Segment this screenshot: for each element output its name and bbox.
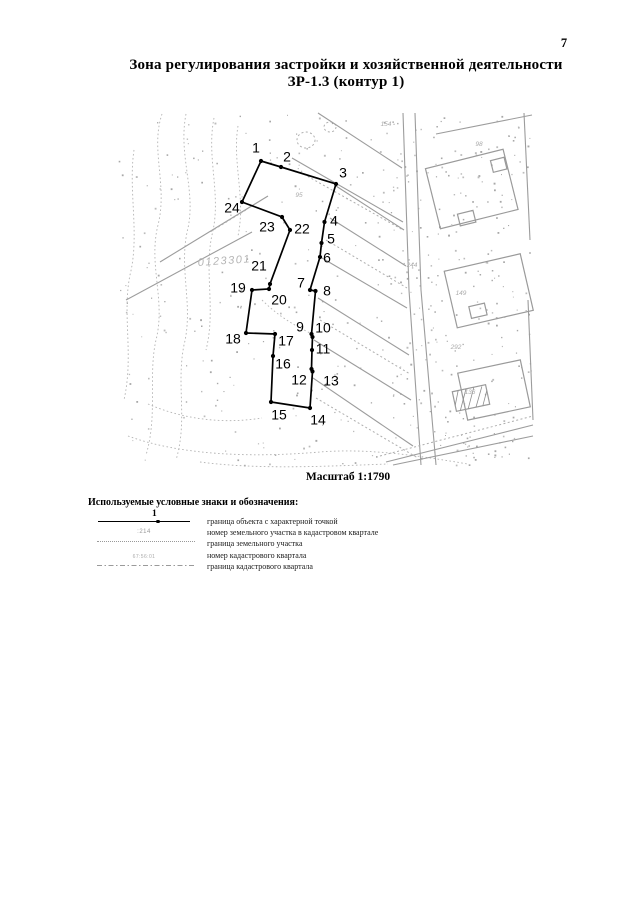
boundary-point-dot	[267, 287, 271, 291]
boundary-point-dot	[279, 165, 283, 169]
map-figure: 0123301 1549895244149292136 123456789101…	[0, 0, 640, 905]
boundary-point-dot	[244, 331, 248, 335]
boundary-point-dot	[310, 348, 314, 352]
boundary-point-label: 13	[323, 373, 339, 389]
boundary-point-label: 17	[278, 333, 294, 349]
legend-symbol-quarter-number: 67:56:01	[98, 554, 190, 560]
boundary-point-dot	[310, 369, 314, 373]
boundary-point-dot	[313, 289, 317, 293]
boundary-point-dot	[268, 282, 272, 286]
legend-label-quarter-number: номер кадастрового квартала	[207, 551, 306, 560]
boundary-point-dot	[280, 215, 284, 219]
legend-boundary-point-dot	[156, 520, 160, 524]
boundary-point-label: 15	[271, 407, 287, 423]
boundary-point-label: 10	[315, 320, 331, 336]
legend-header: Используемые условные знаки и обозначени…	[88, 497, 298, 508]
boundary-point-label: 1	[252, 140, 260, 156]
legend-label-parcel-number: номер земельного участка в кадастровом к…	[207, 528, 378, 537]
boundary-point-label: 23	[259, 219, 275, 235]
boundary-point-label: 5	[327, 231, 335, 247]
boundary-point-label: 9	[296, 319, 304, 335]
parcel-number-label: 149	[456, 290, 467, 297]
boundary-point-label: 24	[224, 200, 240, 216]
legend-symbol-object-boundary: 1	[98, 510, 198, 524]
boundary-point-dot	[240, 200, 244, 204]
parcel-number-label: 154	[381, 121, 392, 128]
legend-symbol-parcel-number: :214	[98, 529, 190, 535]
legend-sample-point-number: 1	[152, 509, 157, 519]
building-outlines	[425, 149, 533, 420]
boundary-point-dot	[308, 406, 312, 410]
boundary-point-dot	[318, 255, 322, 259]
parcel-number-label: 136	[465, 389, 476, 396]
boundary-point-dot	[250, 288, 254, 292]
legend-symbol-quarter-boundary	[97, 565, 195, 566]
boundary-point-dot	[288, 228, 292, 232]
legend-label-parcel-boundary: граница земельного участка	[207, 539, 303, 548]
boundary-point-dot	[259, 159, 263, 163]
boundary-point-dot	[308, 288, 312, 292]
boundary-point-label: 3	[339, 165, 347, 181]
boundary-point-label: 19	[230, 280, 246, 296]
boundary-point-label: 22	[294, 221, 310, 237]
boundary-point-dot	[310, 335, 314, 339]
boundary-point-label: 6	[323, 250, 331, 266]
document-page: 7 Зона регулирования застройки и хозяйст…	[0, 0, 640, 905]
boundary-point-dot	[334, 182, 338, 186]
boundary-point-dot	[269, 400, 273, 404]
boundary-point-label: 18	[225, 331, 241, 347]
legend-label-quarter-boundary: граница кадастрового квартала	[207, 562, 313, 571]
map-scale-caption: Масштаб 1:1790	[28, 471, 640, 483]
cadastral-map: 0123301 1549895244149292136 123456789101…	[0, 0, 640, 905]
legend-boundary-line	[98, 521, 190, 522]
legend-symbol-parcel-boundary	[97, 541, 195, 542]
parcel-number-label: 95	[295, 192, 303, 199]
boundary-point-dot	[273, 332, 277, 336]
boundary-point-label: 21	[251, 258, 267, 274]
legend-label-object-boundary: граница объекта с характерной точкой	[207, 517, 338, 526]
parcel-number-label: 98	[475, 141, 483, 148]
parcel-number-label: 292	[450, 344, 462, 351]
boundary-point-label: 14	[310, 412, 326, 428]
boundary-point-dot	[319, 241, 323, 245]
boundary-point-label: 4	[330, 213, 338, 229]
boundary-point-labels: 123456789101112131415161718192021222324	[224, 140, 347, 428]
boundary-point-label: 2	[283, 149, 291, 165]
boundary-point-label: 16	[275, 356, 291, 372]
boundary-point-label: 20	[271, 292, 287, 308]
boundary-point-dot	[322, 220, 326, 224]
cadastral-quarter-number: 0123301	[197, 253, 251, 269]
parcel-number-label: 244	[406, 262, 418, 269]
boundary-point-label: 8	[323, 283, 331, 299]
boundary-point-label: 7	[297, 275, 305, 291]
boundary-point-label: 11	[316, 341, 331, 357]
boundary-point-label: 12	[291, 372, 307, 388]
